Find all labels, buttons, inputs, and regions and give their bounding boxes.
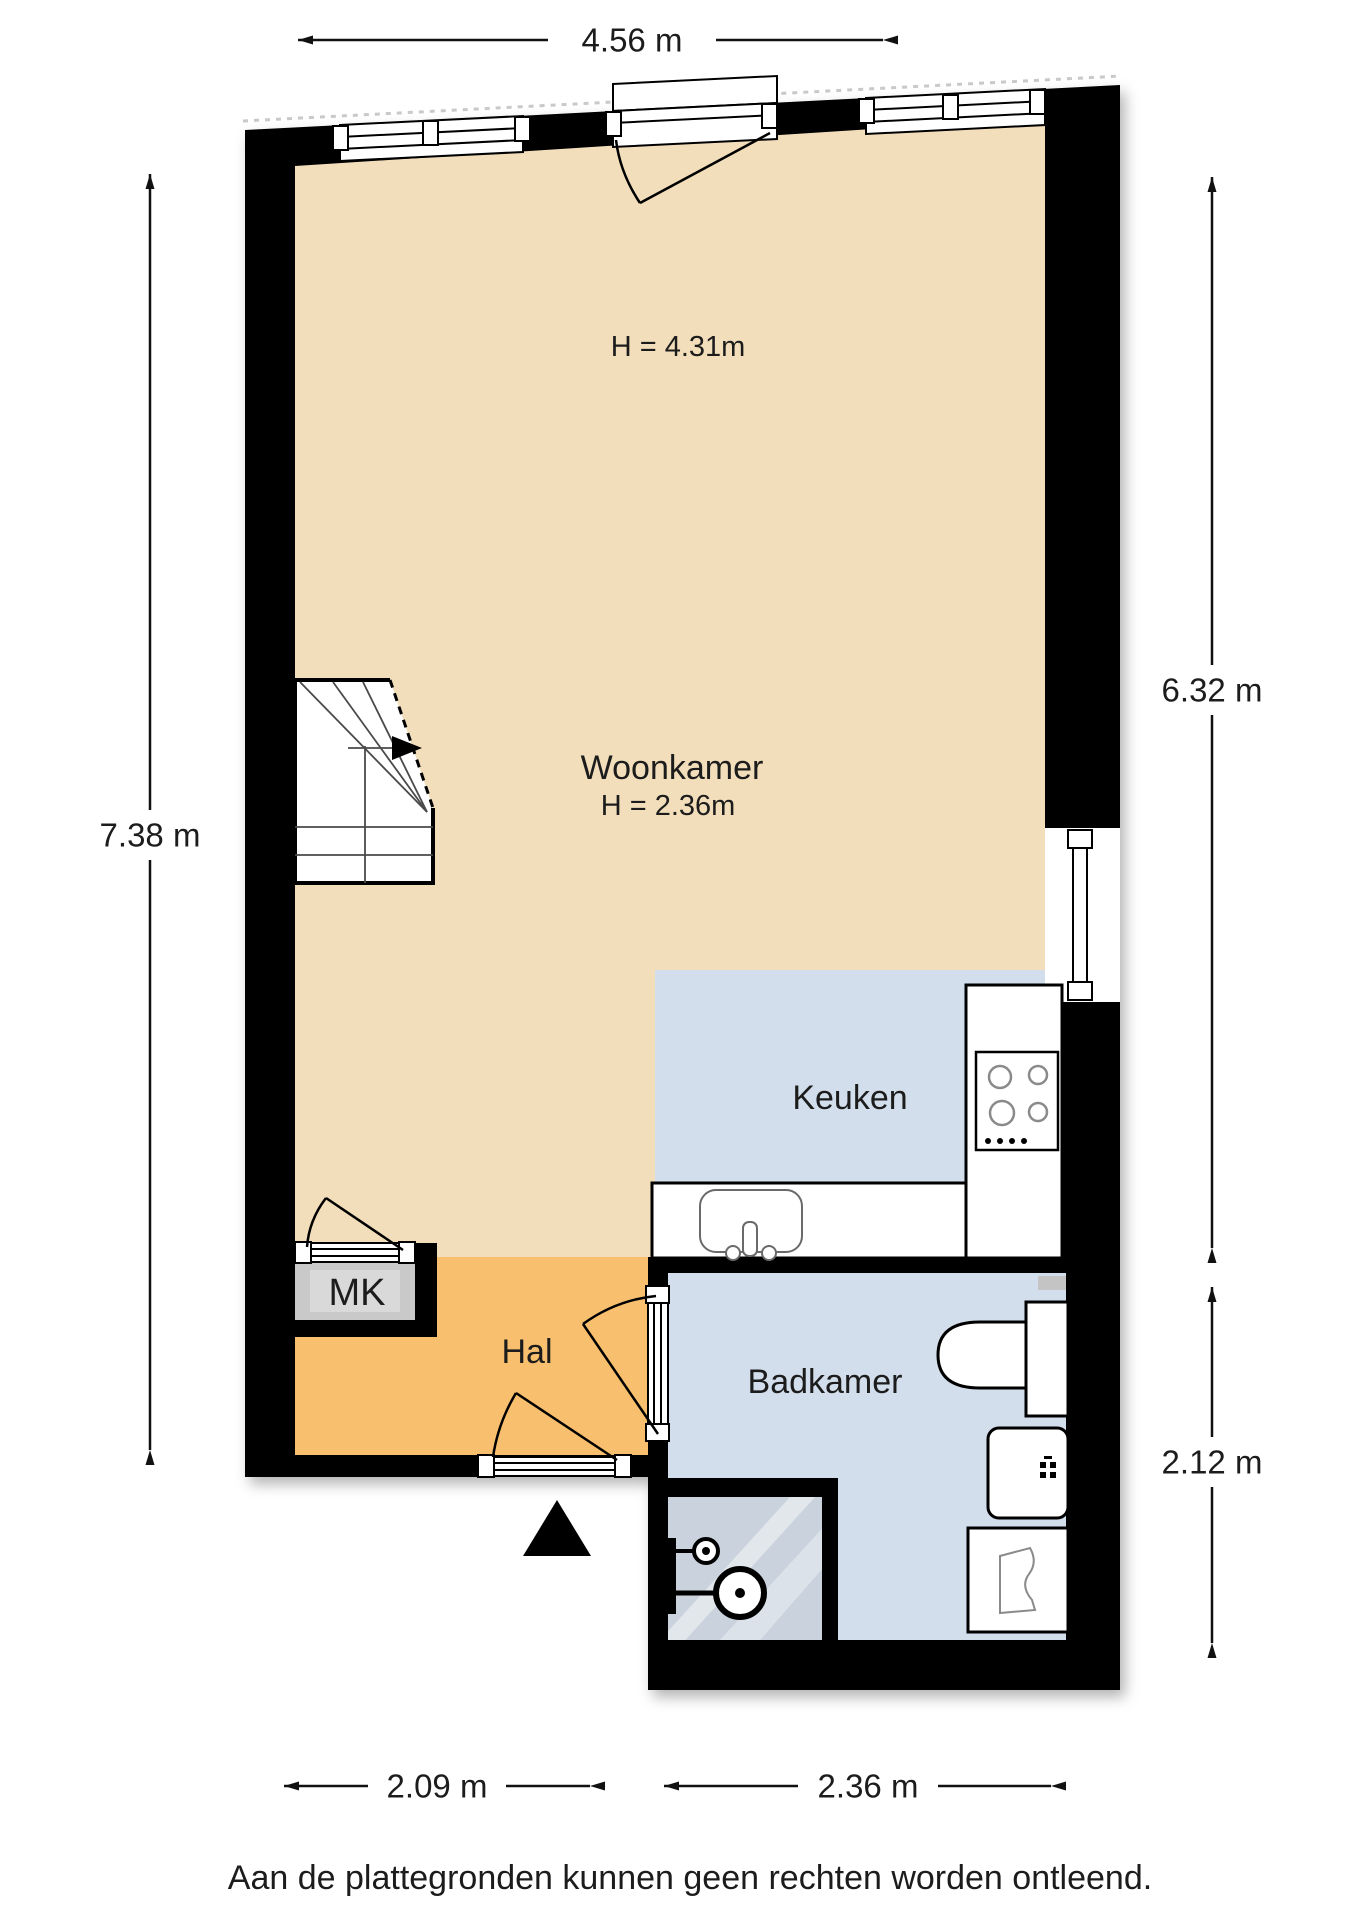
room-label-mk: MK — [329, 1272, 386, 1314]
sink-icon — [700, 1190, 802, 1260]
stove-icon — [976, 1052, 1058, 1150]
door-icon — [648, 1302, 668, 1424]
room-label-woonkamer: Woonkamer — [581, 749, 764, 787]
dim-right-upper-label: 6.32 m — [1162, 672, 1263, 709]
dim-left-label: 7.38 m — [100, 817, 201, 854]
dim-top-label: 4.56 m — [582, 22, 683, 59]
kitchen-tall-unit — [966, 985, 1062, 1258]
dim-bottom-right-label: 2.36 m — [818, 1768, 919, 1805]
room-height-note-woonkamer: H = 2.36m — [601, 790, 736, 822]
window-icon — [1045, 828, 1120, 1002]
kitchen-counter — [652, 1183, 966, 1260]
right-wall-window — [1045, 828, 1120, 1002]
room-label-hal: Hal — [501, 1333, 552, 1371]
floorplan-page: 4.56 m 7.38 m 6.32 m 2.12 m 2.09 m 2.36 … — [0, 0, 1358, 1920]
washer-icon — [988, 1428, 1068, 1518]
room-label-keuken: Keuken — [792, 1079, 907, 1117]
shower-top-wall — [668, 1478, 838, 1497]
ceiling-height-note: H = 4.31m — [611, 331, 746, 363]
entrance-arrow-icon — [523, 1500, 591, 1556]
disclaimer-text: Aan de plattegronden kunnen geen rechten… — [228, 1859, 1152, 1897]
floorplan-svg: 4.56 m 7.38 m 6.32 m 2.12 m 2.09 m 2.36 … — [0, 0, 1358, 1920]
dim-bottom-left-label: 2.09 m — [387, 1768, 488, 1805]
basin-icon — [968, 1528, 1068, 1632]
window-icon — [613, 103, 777, 147]
shower-divider-wall — [822, 1478, 838, 1640]
mk-door-icon — [309, 1243, 401, 1262]
mk-bottom-wall — [295, 1320, 437, 1337]
door-icon — [493, 1457, 617, 1476]
threshold — [1038, 1276, 1066, 1290]
dim-right-lower-label: 2.12 m — [1162, 1444, 1263, 1481]
room-label-badkamer: Badkamer — [748, 1363, 903, 1401]
